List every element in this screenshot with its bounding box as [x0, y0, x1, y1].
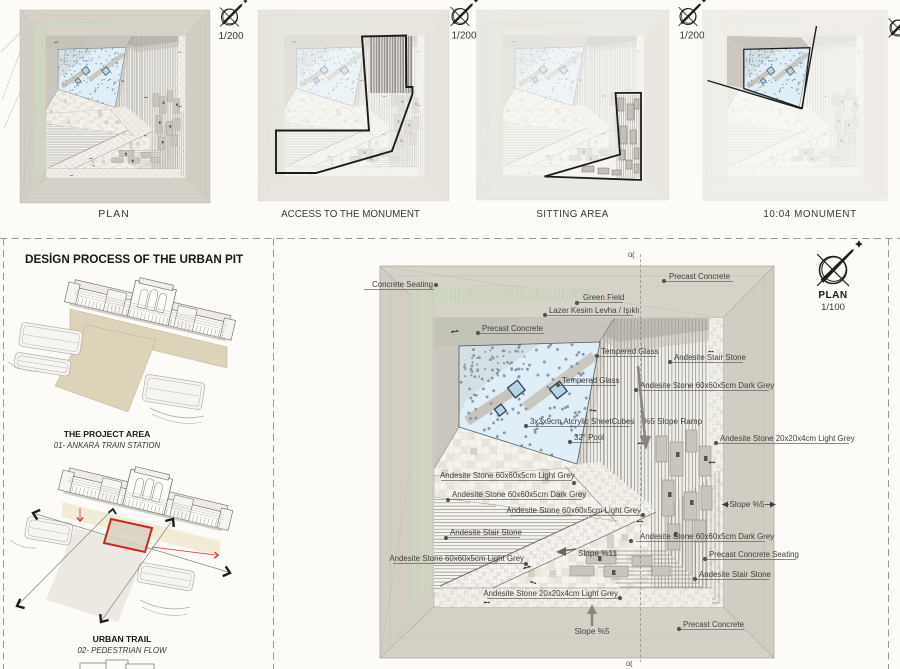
svg-text:Precast Concrete: Precast Concrete	[683, 620, 745, 629]
svg-text:1/200: 1/200	[679, 31, 704, 42]
svg-text:1/200: 1/200	[451, 31, 476, 42]
svg-text:Green Field: Green Field	[583, 293, 624, 302]
svg-text:Andesite Stone 60x60x5cm Light: Andesite Stone 60x60x5cm Light Grey	[440, 471, 575, 480]
svg-text:PLAN: PLAN	[818, 290, 847, 301]
svg-text:%5 Slope Ramp: %5 Slope Ramp	[643, 417, 703, 426]
svg-text:DESİGN PROCESS OF THE URBAN PI: DESİGN PROCESS OF THE URBAN PIT	[25, 253, 244, 266]
svg-text:Precast Concrete: Precast Concrete	[669, 272, 731, 281]
svg-text:Slope %11: Slope %11	[578, 549, 617, 558]
svg-text:Andesite Stone 60x60x5cm Dark: Andesite Stone 60x60x5cm Dark Grey	[640, 381, 774, 390]
svg-text:ü(: ü(	[628, 250, 635, 259]
svg-text:PLAN: PLAN	[98, 208, 129, 220]
svg-text:ACCESS TO THE MONUMENT: ACCESS TO THE MONUMENT	[281, 209, 420, 220]
svg-text:32° Pool: 32° Pool	[574, 433, 604, 442]
svg-text:Slope %5: Slope %5	[729, 500, 764, 509]
svg-text:01- ANKARA TRAIN STATION: 01- ANKARA TRAIN STATION	[54, 441, 161, 450]
svg-text:Andesite Stone 20x20x4cm Light: Andesite Stone 20x20x4cm Light Grey	[483, 589, 618, 598]
svg-text:THE PROJECT AREA: THE PROJECT AREA	[64, 429, 151, 439]
svg-text:1/100: 1/100	[821, 302, 845, 313]
svg-text:Andesite Stair Stone: Andesite Stair Stone	[674, 353, 747, 362]
svg-text:URBAN TRAIL: URBAN TRAIL	[93, 634, 152, 644]
svg-text:Concrete Seating: Concrete Seating	[372, 280, 433, 289]
svg-text:10:04 MONUMENT: 10:04 MONUMENT	[763, 209, 856, 220]
svg-text:Lazer Kesim Levha / Işıklı: Lazer Kesim Levha / Işıklı	[549, 306, 639, 315]
svg-text:1/200: 1/200	[218, 31, 243, 42]
svg-text:Slope %5: Slope %5	[574, 627, 609, 636]
svg-text:SITTING AREA: SITTING AREA	[536, 209, 608, 220]
svg-text:ü(: ü(	[626, 659, 633, 668]
svg-text:Tempered Glass: Tempered Glass	[562, 376, 620, 385]
svg-text:Precast Concrete Seating: Precast Concrete Seating	[709, 550, 799, 559]
svg-text:Tempered Glass: Tempered Glass	[601, 347, 659, 356]
svg-text:Andesite Stair Stone: Andesite Stair Stone	[699, 570, 772, 579]
svg-text:Andesite Stone 20x20x4cm Light: Andesite Stone 20x20x4cm Light Grey	[720, 434, 855, 443]
svg-text:02- PEDESTRIAN FLOW: 02- PEDESTRIAN FLOW	[77, 646, 168, 655]
svg-text:Andesite Stone 60x60x5cm Light: Andesite Stone 60x60x5cm Light Grey	[506, 506, 641, 515]
svg-text:Andesite Stair Stone: Andesite Stair Stone	[450, 528, 523, 537]
svg-text:Precast Concrete: Precast Concrete	[482, 324, 544, 333]
svg-text:Andesite Stone 60x60x5cm Dark: Andesite Stone 60x60x5cm Dark Grey	[640, 532, 774, 541]
svg-text:Andesite Stone 60x60x5cm Dark: Andesite Stone 60x60x5cm Dark Grey	[452, 490, 586, 499]
svg-text:3x3x9cm Atcrylic SheetCubes: 3x3x9cm Atcrylic SheetCubes	[530, 417, 634, 426]
svg-text:Andesite Stone 60x60x5cm Light: Andesite Stone 60x60x5cm Light Grey	[389, 554, 524, 563]
